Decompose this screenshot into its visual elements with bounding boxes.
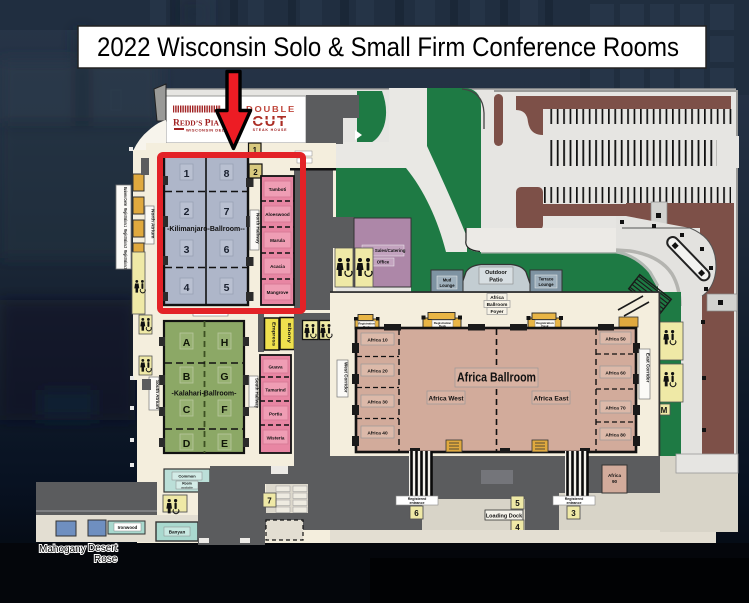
- svg-text:Africa 20: Africa 20: [367, 369, 388, 375]
- svg-text:Mahogany: Mahogany: [39, 544, 86, 555]
- svg-text:-Kalahari-Ballroom-: -Kalahari-Ballroom-: [172, 391, 238, 398]
- svg-text:Empress: Empress: [272, 322, 277, 347]
- svg-text:Business Center: Business Center: [123, 187, 128, 206]
- svg-text:North Atrium: North Atrium: [150, 209, 156, 238]
- svg-text:6: 6: [414, 509, 419, 518]
- svg-text:B: B: [183, 371, 191, 383]
- svg-text:Foyer: Foyer: [490, 309, 503, 315]
- svg-text:1: 1: [184, 168, 190, 180]
- svg-text:East Corridor: East Corridor: [646, 353, 651, 383]
- svg-text:Rose: Rose: [94, 554, 118, 565]
- svg-text:Lounge: Lounge: [439, 283, 455, 288]
- svg-text:M: M: [661, 406, 668, 415]
- svg-text:Guava: Guava: [268, 365, 282, 370]
- svg-text:G: G: [220, 371, 228, 383]
- svg-text:North Hallway: North Hallway: [256, 213, 261, 244]
- svg-text:Marula: Marula: [270, 238, 285, 243]
- svg-text:Africa 50: Africa 50: [605, 337, 626, 343]
- svg-text:Acacia: Acacia: [270, 264, 285, 269]
- svg-text:Office: Office: [377, 260, 390, 265]
- svg-text:entrance: entrance: [410, 501, 425, 505]
- svg-text:Banyan: Banyan: [169, 530, 186, 535]
- svg-text:6: 6: [224, 244, 230, 256]
- svg-text:3: 3: [184, 244, 190, 256]
- svg-text:Mud: Mud: [443, 278, 452, 283]
- svg-text:entrance: entrance: [567, 501, 582, 505]
- svg-text:Terrace: Terrace: [539, 277, 554, 282]
- svg-text:Ebony: Ebony: [287, 323, 292, 344]
- svg-text:Africa: Africa: [608, 473, 621, 478]
- svg-text:Africa Ballroom: Africa Ballroom: [457, 371, 536, 385]
- svg-text:Africa 70: Africa 70: [605, 406, 626, 412]
- svg-text:Africa 40: Africa 40: [367, 431, 388, 437]
- svg-text:90: 90: [612, 479, 618, 484]
- svg-text:Africa: Africa: [490, 295, 504, 301]
- svg-text:2: 2: [253, 168, 258, 177]
- svg-text:STEAK HOUSE: STEAK HOUSE: [253, 128, 288, 132]
- svg-text:D: D: [183, 438, 191, 450]
- svg-text:2: 2: [184, 206, 190, 218]
- svg-text:5: 5: [224, 282, 230, 294]
- svg-text:7: 7: [267, 497, 272, 506]
- svg-text:F: F: [221, 404, 228, 416]
- svg-text:Ironwood: Ironwood: [118, 525, 138, 530]
- svg-text:Portia: Portia: [269, 412, 282, 417]
- svg-text:Outdoor: Outdoor: [485, 270, 508, 276]
- svg-text:3: 3: [571, 509, 576, 518]
- svg-text:Desert: Desert: [88, 543, 118, 554]
- svg-text:Patio: Patio: [489, 278, 503, 284]
- svg-text:Registration 1: Registration 1: [123, 208, 128, 227]
- svg-text:E: E: [221, 438, 228, 450]
- svg-text:Tamboti: Tamboti: [269, 187, 287, 192]
- svg-text:Registration 3: Registration 3: [123, 250, 128, 269]
- svg-text:-Kilimanjaro-Ballroom--: -Kilimanjaro-Ballroom--: [167, 226, 245, 233]
- svg-text:Registration 2: Registration 2: [123, 229, 128, 248]
- svg-text:4: 4: [184, 282, 190, 294]
- svg-text:2022 Wisconsin Solo & Small Fi: 2022 Wisconsin Solo & Small Firm Confere…: [97, 32, 679, 62]
- svg-text:Common: Common: [178, 474, 196, 479]
- svg-text:Africa 80: Africa 80: [605, 433, 626, 439]
- svg-text:H: H: [221, 337, 229, 349]
- svg-text:Africa 30: Africa 30: [367, 400, 388, 406]
- svg-text:7: 7: [224, 206, 230, 218]
- svg-text:South Hallway: South Hallway: [255, 378, 260, 409]
- svg-text:8: 8: [224, 168, 230, 180]
- svg-text:available: available: [181, 486, 193, 490]
- svg-text:Africa 60: Africa 60: [605, 371, 626, 377]
- svg-text:Mangrove: Mangrove: [267, 290, 289, 295]
- svg-text:Africa West: Africa West: [429, 396, 465, 403]
- svg-text:5: 5: [515, 499, 520, 508]
- svg-text:A: A: [183, 337, 191, 349]
- svg-text:Aloeswood: Aloeswood: [265, 212, 290, 217]
- svg-text:Africa East: Africa East: [534, 396, 570, 403]
- svg-text:C: C: [183, 404, 191, 416]
- svg-text:West Corridor: West Corridor: [344, 362, 349, 393]
- svg-text:Wisteria: Wisteria: [267, 436, 285, 441]
- svg-text:Tamarind: Tamarind: [265, 388, 286, 393]
- svg-text:Ballroom: Ballroom: [487, 302, 508, 308]
- svg-text:Loading Dock: Loading Dock: [486, 514, 523, 520]
- svg-text:Africa 10: Africa 10: [367, 338, 388, 344]
- svg-text:South Atrium: South Atrium: [155, 380, 160, 409]
- svg-text:Lounge: Lounge: [538, 282, 554, 287]
